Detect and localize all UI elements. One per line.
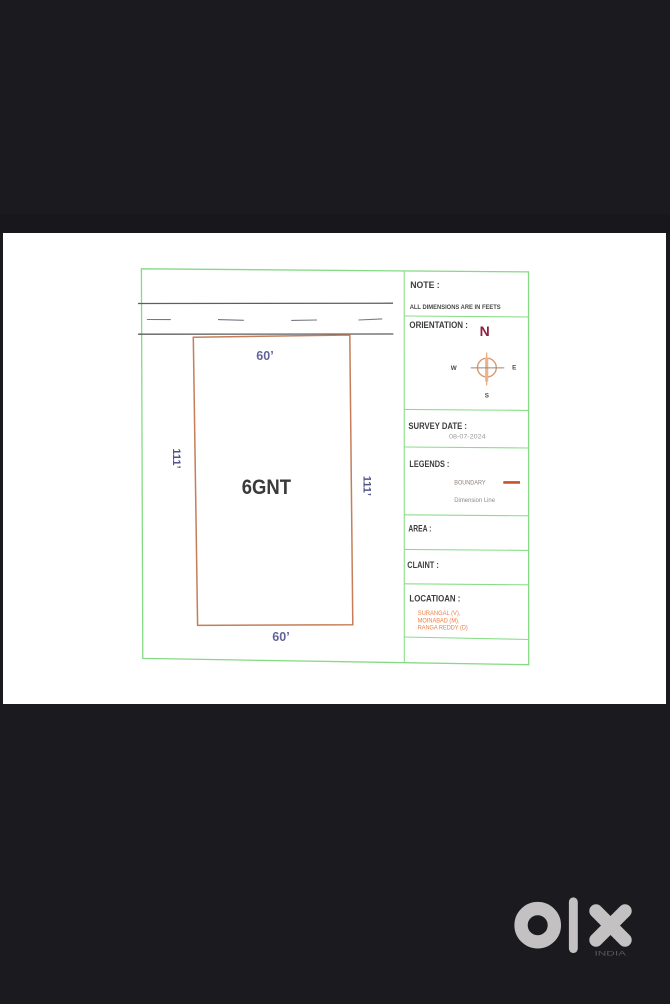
svg-text:111’: 111’ (170, 448, 182, 468)
svg-text:W: W (451, 365, 457, 372)
svg-text:RANGA REDDY (D): RANGA REDDY (D) (418, 625, 468, 632)
svg-text:6GNT: 6GNT (242, 475, 291, 499)
svg-text:ORIENTATION :: ORIENTATION : (409, 320, 468, 330)
svg-text:LEGENDS :: LEGENDS : (409, 459, 449, 469)
svg-text:N: N (480, 323, 490, 339)
svg-text:MOINABAD (M),: MOINABAD (M), (418, 617, 460, 624)
svg-text:CLAINT :: CLAINT : (407, 560, 439, 570)
svg-text:ALL DIMENSIONS ARE IN FEETS: ALL DIMENSIONS ARE IN FEETS (410, 304, 501, 311)
svg-text:SURVEY DATE :: SURVEY DATE : (408, 421, 467, 431)
svg-text:SURANGAL (V),: SURANGAL (V), (418, 610, 461, 617)
svg-text:08-07-2024: 08-07-2024 (449, 435, 486, 441)
svg-text:S: S (485, 392, 489, 399)
svg-text:111’: 111’ (361, 476, 373, 496)
svg-text:AREA :: AREA : (408, 524, 431, 534)
svg-text:60’: 60’ (272, 630, 289, 644)
svg-text:60’: 60’ (256, 349, 273, 363)
svg-text:BOUNDARY: BOUNDARY (454, 479, 486, 486)
svg-text:E: E (512, 364, 516, 371)
svg-text:Dimension Line: Dimension Line (454, 497, 495, 504)
svg-text:INDIA: INDIA (595, 951, 627, 957)
svg-text:LOCATIOAN :: LOCATIOAN : (409, 594, 460, 604)
svg-text:NOTE :: NOTE : (410, 280, 440, 290)
